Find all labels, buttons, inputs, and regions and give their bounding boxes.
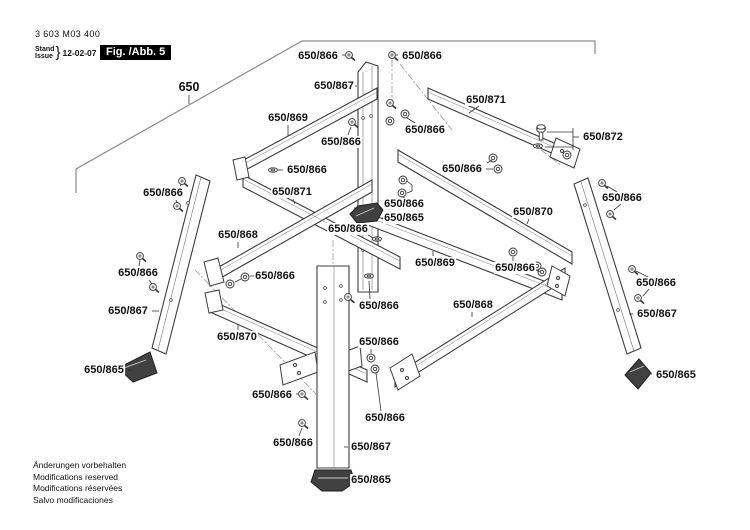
- part-label-650-866: 650/866: [358, 336, 400, 348]
- leader-line: [235, 279, 241, 282]
- leader-line: [643, 288, 650, 296]
- screw-fastener: [137, 253, 146, 262]
- revision-date: 12-02-07: [62, 48, 96, 58]
- part-label-650-866: 650/866: [494, 262, 536, 274]
- nut-fastener: [401, 110, 409, 118]
- leader-line: [614, 204, 621, 210]
- part-label-650-866: 650/866: [358, 300, 400, 312]
- part-label-650-870: 650/870: [512, 206, 554, 218]
- part-label-650-866: 650/866: [251, 389, 293, 401]
- screw-fastener: [599, 180, 608, 189]
- leader-line: [348, 127, 351, 135]
- screw-fastener: [389, 52, 398, 61]
- part-label-650-868: 650/868: [452, 299, 494, 311]
- screw-fastener: [346, 52, 355, 61]
- nut-fastener: [398, 189, 406, 197]
- screw-fastener: [299, 391, 308, 400]
- part-label-650-866: 650/866: [142, 187, 184, 199]
- nut-fastener: [509, 248, 517, 256]
- part-label-650-866: 650/866: [383, 198, 425, 210]
- document-part-number: 3 603 M03 400: [35, 29, 100, 39]
- part-label-650-867: 650/867: [107, 305, 149, 317]
- leader-line: [527, 219, 529, 224]
- legal-footnote: Änderungen vorbehalten Modifications res…: [33, 460, 126, 506]
- nut-fastener: [371, 365, 379, 373]
- part-label-650-866: 650/866: [401, 50, 443, 62]
- screw-fastener: [179, 178, 188, 187]
- part-label-650-866: 650/866: [364, 412, 406, 424]
- part-label-650-866: 650/866: [272, 437, 314, 449]
- part-label-650-868: 650/868: [217, 229, 259, 241]
- washer-fastener: [373, 237, 382, 241]
- nut-fastener: [399, 176, 407, 184]
- foot-front: [311, 470, 355, 491]
- revision-word-de: Stand: [35, 46, 54, 53]
- part-label-650: 650: [178, 81, 201, 93]
- part-label-650-866: 650/866: [297, 50, 339, 62]
- footnote-line-es: Salvo modificaciones: [33, 495, 126, 507]
- part-label-650-866: 650/866: [601, 192, 643, 204]
- screw-fastener: [607, 211, 616, 220]
- part-label-650-867: 650/867: [313, 80, 355, 92]
- screw-fastener: [150, 284, 159, 293]
- part-label-650-865: 650/865: [350, 474, 392, 486]
- foot-right: [625, 359, 651, 389]
- part-label-650-866: 650/866: [254, 270, 296, 282]
- footnote-line-en: Modifications reserved: [33, 472, 126, 484]
- leader-line: [407, 181, 412, 185]
- part-label-650-872: 650/872: [582, 131, 624, 143]
- screw-fastener: [387, 100, 396, 109]
- nut-fastener: [563, 151, 571, 159]
- part-label-650-865: 650/865: [383, 212, 425, 224]
- part-label-650-866: 650/866: [635, 277, 677, 289]
- part-label-650-870: 650/870: [216, 331, 258, 343]
- part-label-650-866: 650/866: [286, 164, 328, 176]
- leader-line: [376, 373, 381, 411]
- nut-fastener: [241, 273, 249, 281]
- part-label-650-865: 650/865: [655, 369, 697, 381]
- washer-fastener: [365, 274, 374, 278]
- screw-fastener: [629, 266, 638, 275]
- footnote-line-de: Änderungen vorbehalten: [33, 460, 126, 472]
- screw-fastener: [635, 295, 644, 304]
- leader-line: [149, 280, 152, 284]
- leader-line: [139, 260, 140, 266]
- nut-fastener: [226, 280, 234, 288]
- screw-fastener: [349, 119, 358, 128]
- part-label-650-867: 650/867: [636, 308, 678, 320]
- screw-fastener: [299, 420, 308, 429]
- left-leg: [152, 175, 210, 354]
- part-label-650-867: 650/867: [350, 441, 392, 453]
- part-label-650-866: 650/866: [320, 136, 362, 148]
- footnote-line-fr: Modifications réservées: [33, 483, 126, 495]
- part-label-650-866: 650/866: [404, 124, 446, 136]
- part-label-650-869: 650/869: [267, 112, 309, 124]
- washer-fastener: [534, 144, 543, 148]
- fasteners: [137, 52, 644, 429]
- nut-fastener: [367, 354, 375, 362]
- revision-block: Stand Issue } 12-02-07: [35, 44, 97, 61]
- part-label-650-869: 650/869: [414, 257, 456, 269]
- leader-line: [407, 118, 415, 123]
- revision-word-en: Issue: [35, 53, 54, 60]
- part-label-650-865: 650/865: [83, 364, 125, 376]
- exploded-parts-diagram-page: 650650/866650/866650/867650/869650/87165…: [0, 0, 750, 530]
- part-label-650-866: 650/866: [441, 163, 483, 175]
- washer-fastener: [269, 168, 278, 172]
- front-leg: [317, 266, 349, 468]
- part-label-650-871: 650/871: [465, 94, 507, 106]
- nut-fastener: [386, 117, 394, 125]
- leader-line: [299, 428, 302, 436]
- screw-fastener: [174, 203, 183, 212]
- foot-center: [350, 203, 383, 223]
- part-label-650-866: 650/866: [117, 267, 159, 279]
- revision-brace: }: [55, 44, 60, 61]
- rail-650-868-lower-front: [395, 268, 565, 387]
- part-label-650-871: 650/871: [271, 186, 313, 198]
- nut-fastener: [494, 165, 502, 173]
- rail-650-869-upper-left: [240, 88, 377, 173]
- leader-line: [407, 191, 412, 193]
- part-label-650-866: 650/866: [327, 223, 369, 235]
- figure-label-badge: Fig. /Abb. 5: [100, 45, 171, 60]
